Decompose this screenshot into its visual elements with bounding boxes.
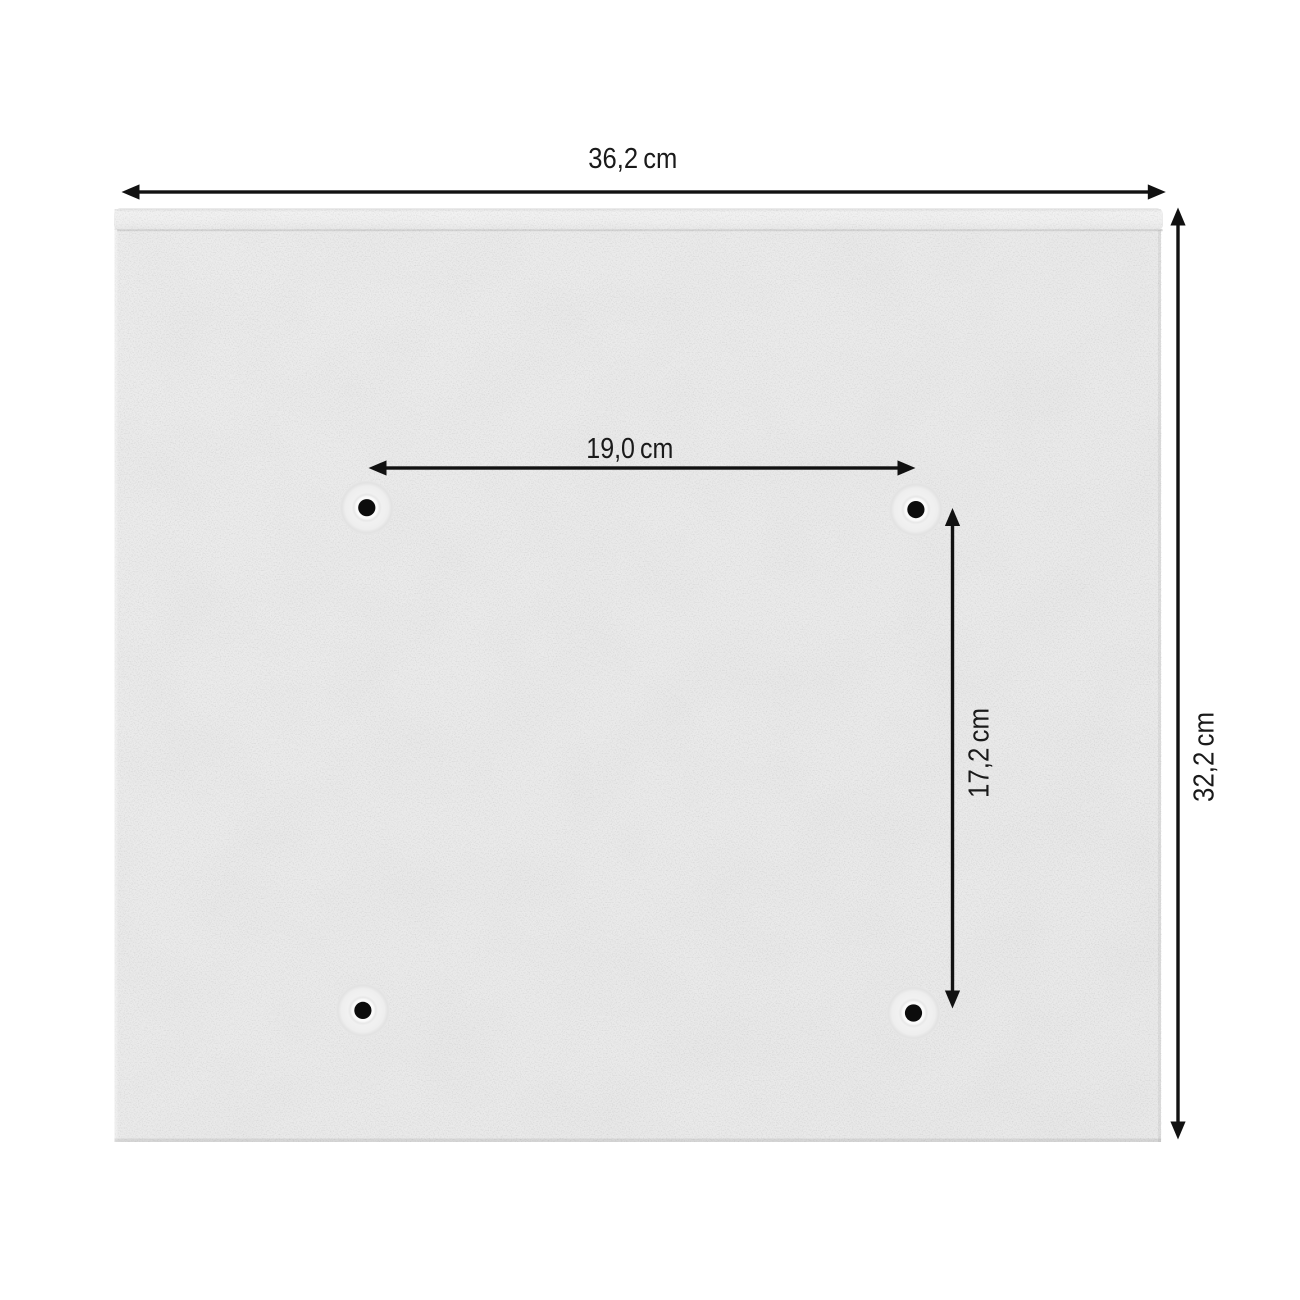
svg-text:17,2 cm: 17,2 cm	[964, 708, 996, 798]
svg-text:36,2 cm: 36,2 cm	[588, 143, 677, 175]
svg-text:32,2 cm: 32,2 cm	[1189, 712, 1221, 802]
svg-text:19,0 cm: 19,0 cm	[586, 433, 673, 465]
